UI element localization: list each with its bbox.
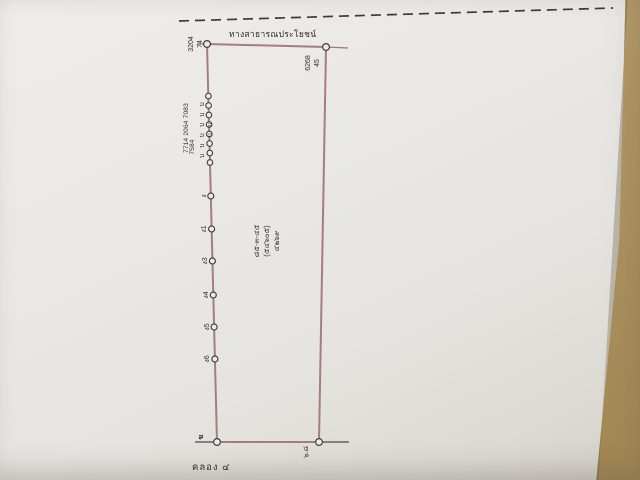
- edge-point-label-1: ง: [199, 190, 207, 202]
- marker-label-top-left: 3204 74: [187, 30, 205, 58]
- marker-top-right: [323, 44, 330, 51]
- road-name-label: ทางสาธารณประโยชน์: [229, 27, 316, 41]
- edge-point-label-4: ง4: [201, 289, 209, 301]
- edge-point-label-3: ง3: [200, 255, 208, 267]
- parcel-info-block: ๘๕-๓-๔๕ (๕๔๖๐๕) ๔๒๖๙: [252, 215, 282, 267]
- marker-bottom-left: [214, 439, 221, 446]
- parcel-area: ๘๕-๓-๔๕: [252, 215, 262, 267]
- edge-point-label-6: ง6: [202, 353, 210, 365]
- marker-label-bottom-right: ๖.๘: [302, 445, 310, 459]
- edge-point-label-5: ง5: [202, 321, 210, 333]
- cluster-marker-numbers-2: 7584: [189, 138, 197, 156]
- marker-top-right-number-2: 45: [313, 49, 322, 77]
- road-dashed-line: [179, 8, 613, 21]
- marker-label-bottom-left: ฆ: [197, 432, 205, 442]
- marker-top-right-number-1: 6268: [304, 49, 313, 77]
- cluster-marker-letters: บ บ บ บ บ บ บ บ: [199, 96, 207, 162]
- parcel-survey-number: (๕๔๖๐๕): [262, 215, 272, 267]
- marker-top-left-number-1: 3204: [187, 30, 196, 58]
- marker-bottom-right: [316, 439, 323, 446]
- parcel-number: ๔๒๖๙: [272, 215, 282, 267]
- marker-top-left-number-2: 74: [196, 30, 205, 58]
- survey-plan-photo: ทางสาธารณประโยชน์ 3204 74 6268 45 บ บ บ …: [0, 0, 640, 480]
- edge-point-label-2: ง1: [199, 223, 207, 235]
- marker-label-top-right: 6268 45: [304, 49, 322, 77]
- canal-name-label: คลอง ๔: [192, 460, 230, 475]
